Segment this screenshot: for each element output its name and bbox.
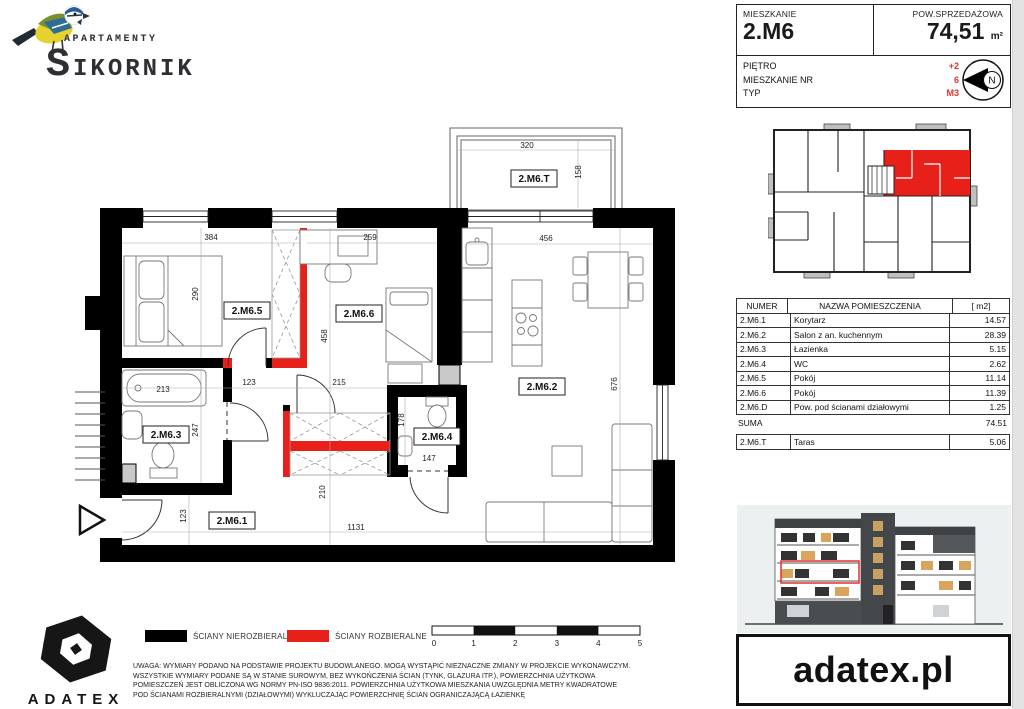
svg-text:247: 247 xyxy=(191,423,200,437)
table-row: 2.M6.DPow. pod ścianami działowymi1.25 xyxy=(737,400,1009,415)
brand-sikornik: SIKORNIK xyxy=(46,46,195,90)
shaft xyxy=(439,365,460,385)
apartment-info-box: MIESZKANIE 2.M6 POW.SPRZEDAŻOWA 74,51 m²… xyxy=(736,4,1011,108)
room-label-2m61: 2.M6.1 xyxy=(217,516,248,527)
legend-swatch-black xyxy=(145,630,187,642)
svg-text:1131: 1131 xyxy=(347,523,365,532)
pietro-label: PIĘTRO xyxy=(743,60,903,74)
svg-text:N: N xyxy=(988,76,995,87)
svg-text:259: 259 xyxy=(363,233,377,242)
table-row: 2.M6.3Łazienka5.15 xyxy=(737,342,1009,357)
website-link: adatex.pl xyxy=(793,649,954,691)
website-box: adatex.pl xyxy=(736,634,1011,706)
svg-text:384: 384 xyxy=(204,233,218,242)
taras-row: 2.M6.T Taras 5.06 xyxy=(737,435,1009,449)
table-row: 2.M6.1Korytarz14.57 xyxy=(737,313,1009,328)
floorplan-page: 320 158 384 259 456 290 458 676 213 123 … xyxy=(0,0,1024,709)
apartment-area: 74,51 m² xyxy=(874,19,1003,49)
legend-label-nierozbieralne: ŚCIANY NIEROZBIERALNE xyxy=(193,632,299,641)
svg-text:210: 210 xyxy=(318,485,327,499)
svg-text:456: 456 xyxy=(539,234,553,243)
svg-text:4: 4 xyxy=(596,639,601,648)
brand-logo: APARTAMENTY SIKORNIK xyxy=(8,0,108,67)
highlighted-apartment xyxy=(884,150,970,196)
disclaimer-line: POD ŚCIANAMI ROZBIERALNYMI (DZIAŁOWYMI) … xyxy=(133,691,737,701)
svg-text:676: 676 xyxy=(610,377,619,391)
svg-text:215: 215 xyxy=(332,378,346,387)
room-label-2m62: 2.M6.2 xyxy=(527,382,558,393)
mieszkanie-nr-label: MIESZKANIE NR xyxy=(743,74,903,88)
svg-text:123: 123 xyxy=(179,509,188,523)
disclaimer-line: POMIESZCZEŃ JEST OBLICZONA WG NORMY PN-I… xyxy=(133,681,737,691)
room-label-2m65: 2.M6.5 xyxy=(232,306,263,317)
bath-shaft xyxy=(122,464,136,483)
svg-text:290: 290 xyxy=(191,287,200,301)
area-unit: m² xyxy=(991,31,1003,42)
pietro-value: +2 xyxy=(903,60,959,74)
disclaimer-text: UWAGA: WYMIARY PODANO NA PODSTAWIE PROJE… xyxy=(133,662,737,700)
table-row: 2.M6.6Pokój11.39 xyxy=(737,385,1009,400)
svg-text:3: 3 xyxy=(555,639,560,648)
svg-text:158: 158 xyxy=(574,165,583,179)
adatex-logo: ADATEX xyxy=(16,612,136,708)
adatex-knot-icon xyxy=(16,612,136,686)
svg-text:1: 1 xyxy=(471,639,476,648)
compass-icon: N xyxy=(961,58,1005,102)
mieszkanie-nr-value: 6 xyxy=(903,74,959,88)
disclaimer-line: UWAGA: WYMIARY PODANO NA PODSTAWIE PROJE… xyxy=(133,662,737,672)
building-elevation-image xyxy=(737,505,1011,633)
brand-apartamenty: APARTAMENTY xyxy=(64,34,158,45)
svg-text:2: 2 xyxy=(513,639,518,648)
col-numer: NUMER xyxy=(737,299,788,313)
suma-label: SUMA xyxy=(738,418,763,428)
room-label-2m6t: 2.M6.T xyxy=(518,174,549,185)
col-nazwa: NAZWA POMIESZCZENIA xyxy=(788,299,953,313)
col-m2: [ m2] xyxy=(953,299,1009,313)
entrance-arrow-icon xyxy=(80,506,104,534)
disclaimer-line: WSZYSTKIE WYMIARY PODANE SĄ W STANIE SUR… xyxy=(133,672,737,682)
room-label-2m63: 2.M6.3 xyxy=(151,430,182,441)
adatex-wordmark: ADATEX xyxy=(16,691,136,708)
svg-text:0: 0 xyxy=(432,639,437,648)
table-header-row: NUMER NAZWA POMIESZCZENIA [ m2] xyxy=(737,299,1009,313)
table-row: 2.M6.4WC2.62 xyxy=(737,356,1009,371)
room-label-2m66: 2.M6.6 xyxy=(344,309,375,320)
legend-swatch-red xyxy=(287,630,329,642)
suma-value: 74.51 xyxy=(986,418,1007,428)
suma-row: SUMA 74.51 xyxy=(736,415,1010,430)
legend-label-rozbieralne: ŚCIANY ROZBIERALNE xyxy=(335,632,427,641)
walls-red xyxy=(223,228,390,477)
svg-text:213: 213 xyxy=(156,385,170,394)
rooms-table: NUMER NAZWA POMIESZCZENIA [ m2] 2.M6.1Ko… xyxy=(736,298,1010,450)
scale-bar: 0 1 2 3 4 5 xyxy=(430,624,648,650)
table-row: 2.M6.2Salon z an. kuchennym28.39 xyxy=(737,327,1009,342)
terrace xyxy=(450,128,622,210)
svg-text:320: 320 xyxy=(520,141,534,150)
svg-text:5: 5 xyxy=(638,639,643,648)
table-row: 2.M6.5Pokój11.14 xyxy=(737,371,1009,386)
typ-label: TYP xyxy=(743,87,903,101)
apartment-number: 2.M6 xyxy=(743,19,873,43)
svg-text:123: 123 xyxy=(242,378,256,387)
page-edge-strip xyxy=(1012,0,1024,709)
svg-text:147: 147 xyxy=(422,454,436,463)
room-label-2m64: 2.M6.4 xyxy=(422,432,453,443)
svg-text:178: 178 xyxy=(397,413,406,427)
svg-text:458: 458 xyxy=(320,329,329,343)
building-level-minimap xyxy=(768,122,1008,280)
typ-value: M3 xyxy=(903,87,959,101)
